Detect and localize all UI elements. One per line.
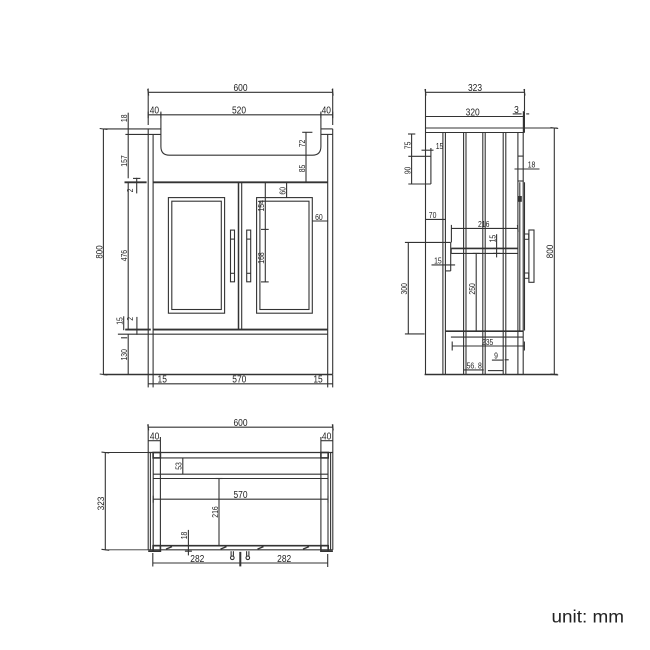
svg-text:15: 15 [488,235,498,243]
svg-text:40: 40 [150,105,159,116]
svg-text:2: 2 [126,189,136,193]
svg-text:3: 3 [514,104,519,115]
svg-text:75: 75 [403,142,413,150]
svg-text:476: 476 [120,250,130,261]
svg-text:18: 18 [180,532,190,540]
svg-text:520: 520 [232,105,246,116]
svg-text:154: 154 [257,200,267,211]
svg-text:90: 90 [403,167,413,175]
svg-text:unit: mm: unit: mm [552,607,625,627]
svg-text:15: 15 [313,374,322,385]
svg-text:570: 570 [233,489,247,500]
svg-text:600: 600 [233,83,247,94]
svg-text:15: 15 [436,141,444,151]
svg-text:9: 9 [494,351,498,361]
svg-text:800: 800 [94,245,105,258]
svg-text:800: 800 [545,245,556,259]
svg-text:40: 40 [322,105,331,116]
svg-text:323: 323 [96,497,107,511]
svg-text:2: 2 [125,317,135,321]
svg-text:300: 300 [400,283,410,294]
svg-text:570: 570 [232,374,246,385]
svg-text:15: 15 [434,256,442,266]
svg-text:40: 40 [322,431,331,442]
svg-text:216: 216 [478,220,489,230]
svg-text:18: 18 [528,160,536,170]
svg-text:600: 600 [233,418,247,429]
svg-text:216: 216 [210,506,220,517]
svg-text:168: 168 [257,252,267,263]
svg-text:60: 60 [315,212,323,222]
svg-text:235: 235 [482,337,493,347]
svg-text:15: 15 [158,374,167,385]
svg-text:323: 323 [468,83,482,94]
svg-text:60: 60 [278,187,288,195]
svg-text:130: 130 [120,349,130,360]
svg-text:72: 72 [297,140,307,148]
svg-text:53: 53 [174,462,184,470]
svg-text:282: 282 [277,553,291,564]
svg-text:70: 70 [429,211,437,221]
svg-text:18: 18 [120,114,130,122]
svg-text:40: 40 [150,431,159,442]
svg-text:250: 250 [468,283,478,294]
svg-text:15: 15 [115,317,125,325]
svg-text:157: 157 [120,155,130,166]
svg-text:320: 320 [466,107,480,118]
svg-text:282: 282 [190,553,204,564]
svg-text:85: 85 [297,165,307,173]
